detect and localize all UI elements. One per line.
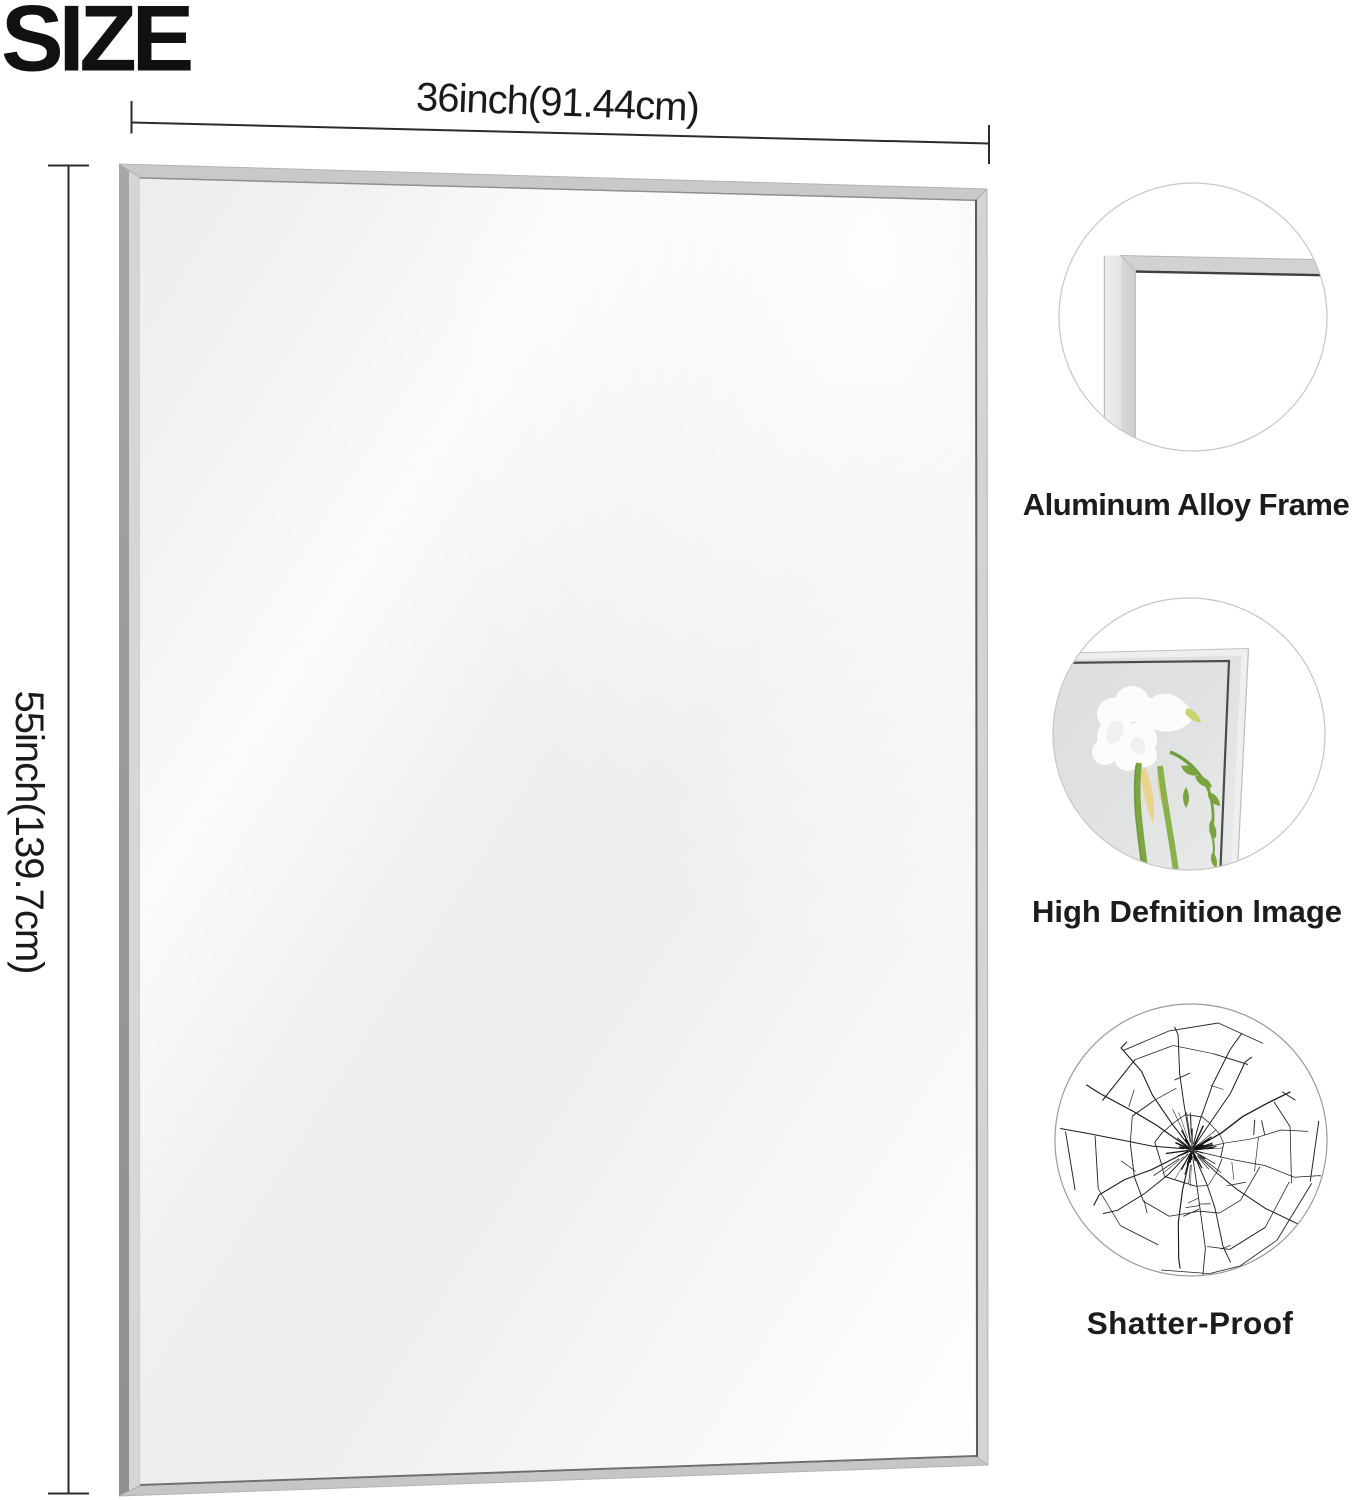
- svg-text:Aluminum Alloy Frame: Aluminum Alloy Frame: [1023, 487, 1350, 522]
- svg-text:SIZE: SIZE: [1, 0, 192, 91]
- svg-text:Shatter-Proof: Shatter-Proof: [1087, 1305, 1294, 1341]
- svg-text:55inch(139.7cm): 55inch(139.7cm): [7, 691, 51, 974]
- svg-text:High Defnition lmage: High Defnition lmage: [1032, 894, 1342, 929]
